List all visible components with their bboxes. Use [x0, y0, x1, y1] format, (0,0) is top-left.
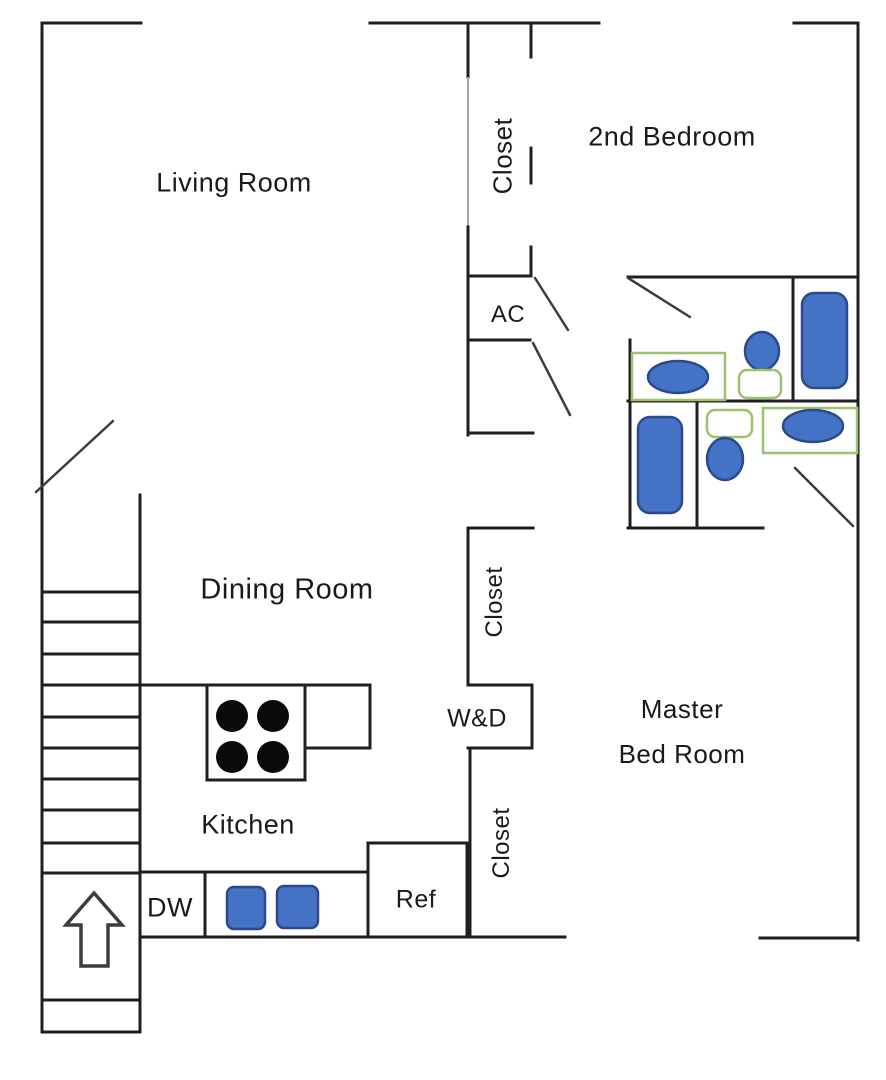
stairs-up-arrow [66, 893, 122, 966]
label-dishwasher: DW [147, 893, 193, 924]
room-label-master-bedroom: Master Bed Room [619, 687, 746, 777]
hall-door-swing-lower [533, 343, 570, 415]
room-label-kitchen: Kitchen [201, 810, 295, 841]
master-bedroom-line1: Master [619, 687, 746, 732]
room-label-2nd-bedroom: 2nd Bedroom [588, 122, 756, 153]
sink-basin-right [277, 886, 318, 928]
hall-door-swing-upper [535, 278, 568, 330]
sink-basin-left [227, 887, 265, 929]
room-label-dining-room: Dining Room [200, 574, 373, 607]
upper-bath-toilet-bowl [739, 370, 781, 398]
upper-bathroom-fixtures [632, 293, 847, 400]
lower-bath-bathtub [638, 417, 682, 513]
floor-plan-drawing [0, 0, 886, 1080]
closet-label-top: Closet [488, 118, 519, 195]
upper-bathroom-door-swing [628, 278, 690, 317]
staircase [42, 495, 140, 1032]
lower-bath-sink [783, 410, 843, 442]
kitchen-sink [227, 886, 318, 929]
hall-closet-walls [468, 23, 533, 435]
closet-label-bottom: Closet [488, 807, 516, 878]
closet-label-middle: Closet [481, 566, 509, 637]
stove-burners [216, 700, 289, 773]
entry-door-swing [36, 421, 113, 492]
label-refrigerator: Ref [396, 886, 436, 915]
lower-bathroom-door-swing [795, 468, 853, 526]
upper-bath-sink [648, 361, 708, 393]
room-label-living-room: Living Room [156, 168, 312, 199]
label-ac: AC [491, 301, 525, 329]
label-washer-dryer: W&D [447, 705, 507, 734]
lower-bath-toilet-tank [707, 438, 743, 480]
upper-bath-bathtub [802, 293, 847, 388]
lower-bath-toilet-bowl [707, 410, 752, 437]
floor-plan: Living Room 2nd Bedroom Dining Room Kitc… [0, 0, 886, 1080]
master-bedroom-line2: Bed Room [619, 732, 746, 777]
upper-bath-toilet-tank [745, 332, 779, 370]
